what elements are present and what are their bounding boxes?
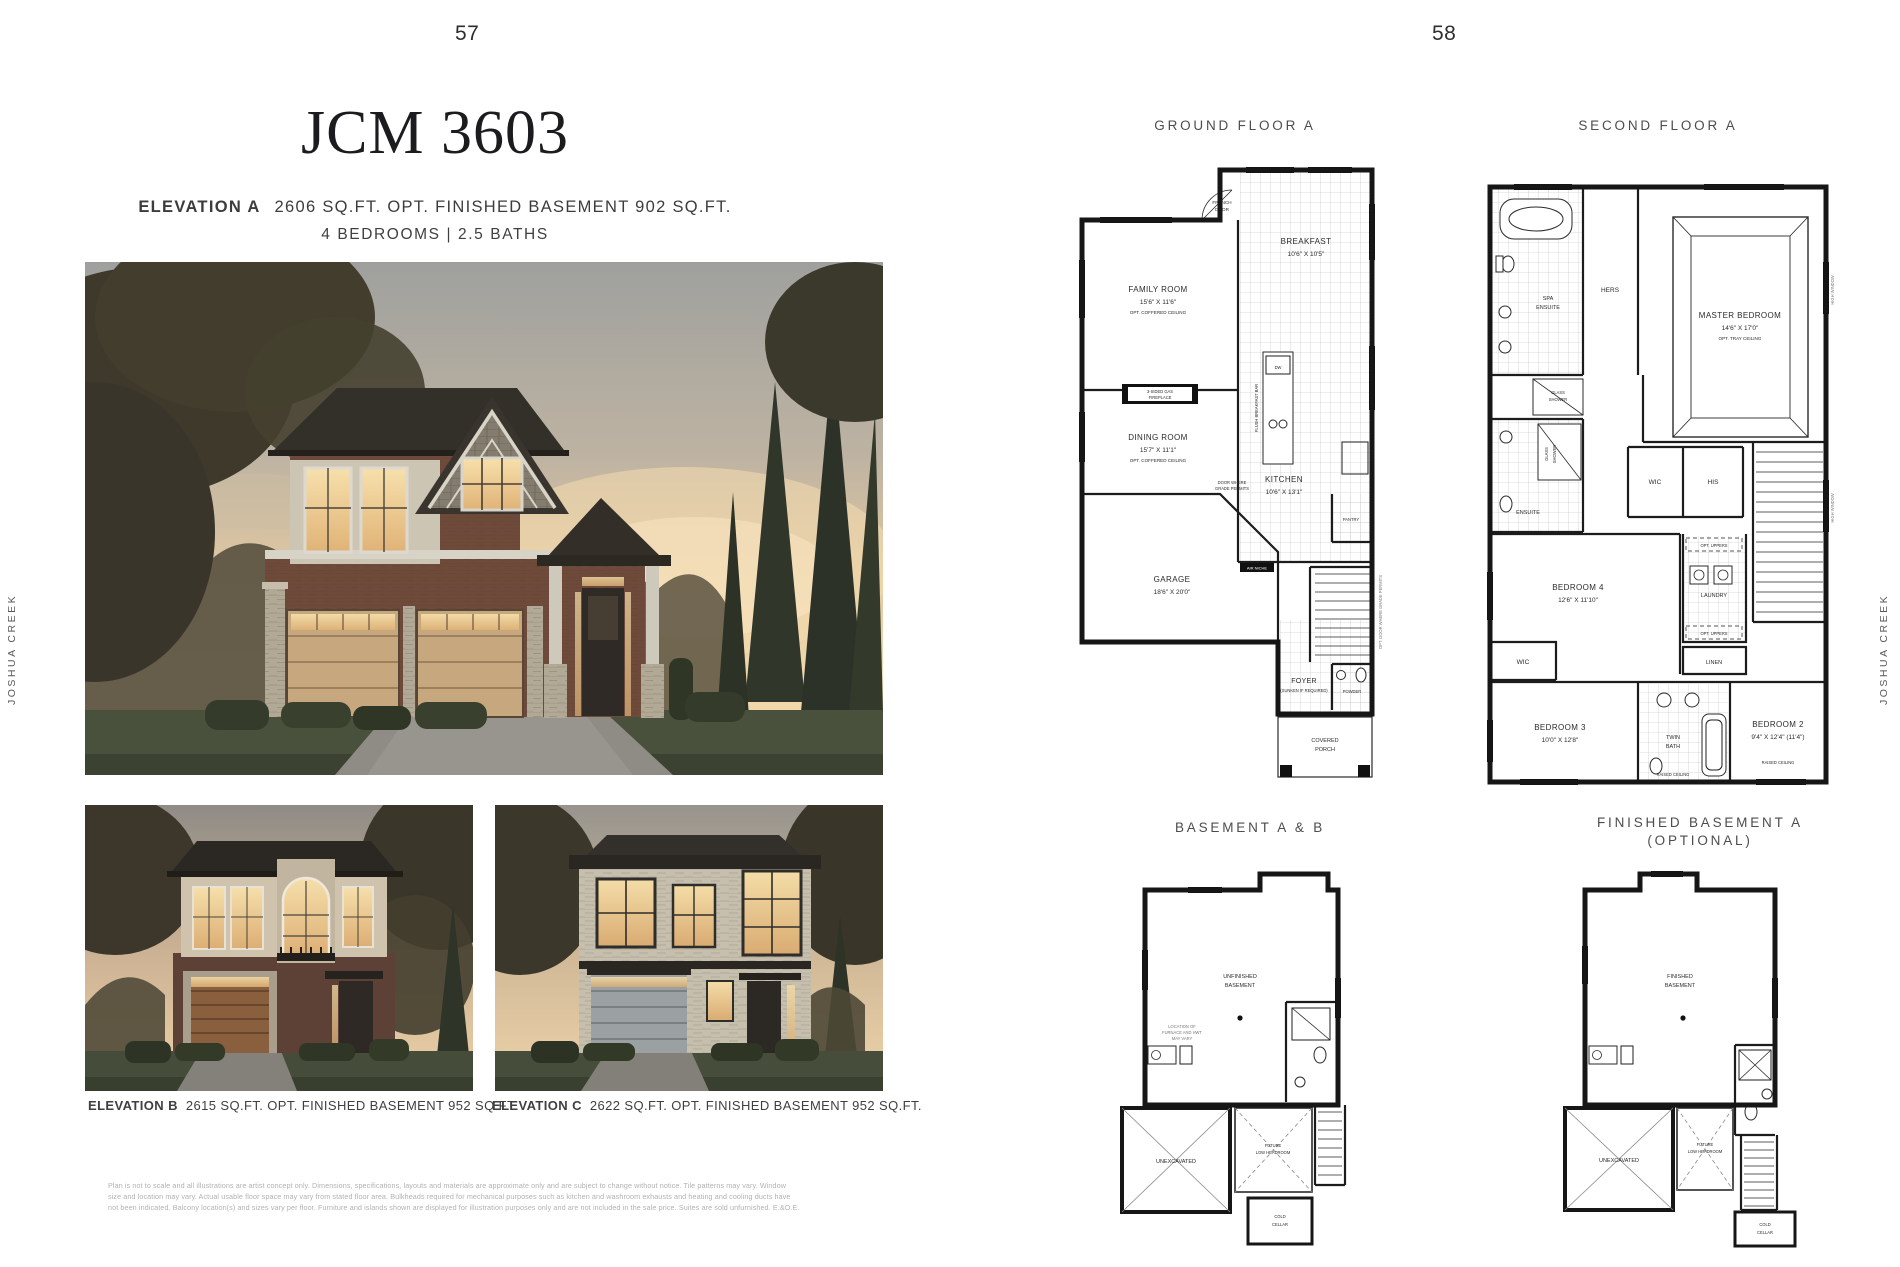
dining-room-dims: 15'7" X 11'1" <box>1140 447 1177 454</box>
cold-cellar-label-2: CELLAR <box>1272 1222 1288 1227</box>
elevation-a-subtitle: ELEVATION A2606 SQ.FT. OPT. FINISHED BAS… <box>85 198 785 217</box>
disclaimer-line-2: size and location may vary. Actual usabl… <box>108 1191 878 1202</box>
elevation-a-rendering <box>85 262 883 775</box>
bedroom2-name: BEDROOM 2 <box>1752 720 1804 729</box>
model-title: JCM 3603 <box>85 98 785 169</box>
bedroom3-name: BEDROOM 3 <box>1534 723 1586 732</box>
family-room-name: FAMILY ROOM <box>1128 285 1187 294</box>
elevation-c-caption: ELEVATION C2622 SQ.FT. OPT. FINISHED BAS… <box>492 1098 922 1113</box>
unfinished-basement-label-1: UNFINISHED <box>1223 974 1257 980</box>
floor-drain <box>1680 1015 1685 1020</box>
breakfast-dims: 10'6" X 10'5" <box>1288 251 1325 258</box>
finished-basement-plan: UNEXCAVATED FUTURE LOW HEADROOM COLD CEL… <box>1545 850 1845 1250</box>
fireplace-label-2: FIREPLACE <box>1149 395 1172 400</box>
future-low-label-1: FUTURE <box>1697 1142 1714 1147</box>
cold-cellar-label-1: COLD <box>1759 1222 1770 1227</box>
page-number-left: 57 <box>455 22 479 46</box>
elevation-c-rendering <box>495 805 883 1091</box>
ground-floor-plan: DW FLUSH BREAKFAST BAR 3-SIDED GAS FIREP… <box>1070 142 1390 797</box>
elevation-c-specs: 2622 SQ.FT. OPT. FINISHED BASEMENT 952 S… <box>590 1098 922 1113</box>
opt-uppers-label-2: OPT. UPPERS <box>1700 631 1727 636</box>
master-name: MASTER BEDROOM <box>1699 311 1782 320</box>
dishwasher-label: DW <box>1275 365 1282 370</box>
unfinished-basement-label-2: BASEMENT <box>1225 983 1256 989</box>
brochure-spread: 57 58 JOSHUA CREEK JOSHUA CREEK JCM 3603… <box>0 0 1900 1267</box>
linen-label: LINEN <box>1706 660 1722 666</box>
ground-floor-title: GROUND FLOOR A <box>1070 118 1400 133</box>
opt-uppers-label-1: OPT. UPPERS <box>1700 543 1727 548</box>
glass-shower2-label-2: SHOWER <box>1552 445 1557 463</box>
floor-drain <box>1237 1015 1242 1020</box>
covered-porch-label-1: COVERED <box>1311 738 1338 744</box>
spa-ensuite-label-1: SPA <box>1543 296 1554 302</box>
garage-dims: 18'6" X 20'0" <box>1154 589 1191 596</box>
breakfast-bar-label: FLUSH BREAKFAST BAR <box>1254 384 1259 432</box>
unexcavated-area: UNEXCAVATED <box>1122 1108 1230 1212</box>
opt-door-note: OPT. DOOR WHERE GRADE PERMITS <box>1378 575 1383 649</box>
side-label-right: JOSHUA CREEK <box>1878 555 1890 705</box>
bedroom3-dims: 10'0" X 12'8" <box>1542 737 1579 744</box>
unexcavated-label: UNEXCAVATED <box>1599 1158 1639 1164</box>
elevation-b-label: ELEVATION B <box>88 1098 178 1113</box>
future-low-headroom-area: FUTURE LOW HEADROOM <box>1677 1108 1733 1190</box>
twin-bath-label-2: BATH <box>1666 744 1680 750</box>
cold-cellar-label-1: COLD <box>1274 1214 1285 1219</box>
family-room-dims: 15'6" X 11'6" <box>1140 299 1177 306</box>
family-room-note: OPT. COFFERED CEILING <box>1130 310 1187 315</box>
house <box>569 835 821 1053</box>
finished-basement-label-1: FINISHED <box>1667 974 1693 980</box>
bedroom4-dims: 12'6" X 11'10" <box>1558 597 1599 604</box>
high-window-label-1: HIGH WINDOW <box>1830 275 1835 304</box>
garage-name: GARAGE <box>1154 575 1191 584</box>
raised-ceiling-label-2: RAISED CEILING <box>1657 772 1690 777</box>
air-niche-label: AIR NICHE <box>1247 566 1268 571</box>
high-window-label-2: HIGH WINDOW <box>1830 493 1835 522</box>
furnace-note-3: MAY VARY <box>1172 1036 1193 1041</box>
cold-cellar: COLD CELLAR <box>1735 1212 1795 1246</box>
glass-shower2-label-1: GLASS <box>1544 447 1549 461</box>
covered-porch: COVERED PORCH <box>1278 717 1372 777</box>
basement-stairs <box>1318 1112 1342 1175</box>
wic-master-label: WIC <box>1649 479 1662 486</box>
kitchen-dims: 10'6" X 13'1" <box>1266 489 1303 496</box>
master-note: OPT. TRAY CEILING <box>1719 336 1762 341</box>
master-dims: 14'6" X 17'0" <box>1722 325 1759 332</box>
elevation-a-specs: 2606 SQ.FT. OPT. FINISHED BASEMENT 902 S… <box>275 198 732 216</box>
house <box>167 841 403 1053</box>
elevation-a-label: ELEVATION A <box>138 198 260 216</box>
future-low-label-1: FUTURE <box>1265 1143 1282 1148</box>
finished-basement-title: FINISHED BASEMENT A <box>1545 815 1855 830</box>
furnace-note-1: LOCATION OF <box>1168 1024 1196 1029</box>
air-niche: AIR NICHE <box>1240 563 1274 572</box>
future-low-label-2: LOW HEADROOM <box>1688 1149 1723 1154</box>
second-floor-title: SECOND FLOOR A <box>1478 118 1838 133</box>
pantry-label: PANTRY <box>1343 517 1359 522</box>
wic2-label: WIC <box>1517 659 1530 666</box>
fireplace-label-1: 3-SIDED GAS <box>1147 389 1173 394</box>
hers-label: HERS <box>1601 287 1620 294</box>
bed-bath-line: 4 BEDROOMS | 2.5 BATHS <box>85 226 785 244</box>
garage-door-note-1: DOOR WHERE <box>1218 480 1247 485</box>
unexcavated-area: UNEXCAVATED <box>1565 1108 1673 1210</box>
future-low-headroom-area: FUTURE LOW HEADROOM <box>1235 1108 1312 1192</box>
basement-stairs <box>1744 1142 1774 1206</box>
elevation-b-caption: ELEVATION B2615 SQ.FT. OPT. FINISHED BAS… <box>88 1098 518 1113</box>
garage-door-note-2: GRADE PERMITS <box>1215 486 1249 491</box>
side-label-left: JOSHUA CREEK <box>6 555 18 705</box>
foyer-note: (SUNKEN IF REQUIRED) <box>1280 688 1328 693</box>
second-floor-plan: GLASS SHOWER GLASS SHOWER OPT. UPPERS OP… <box>1478 142 1838 797</box>
twin-bath-label-1: TWIN <box>1666 735 1680 741</box>
disclaimer: Plan is not to scale and all illustratio… <box>108 1180 878 1213</box>
ensuite-label: ENSUITE <box>1516 510 1540 516</box>
covered-porch-label-2: PORCH <box>1315 747 1335 753</box>
dining-room-note: OPT. COFFERED CEILING <box>1130 458 1187 463</box>
unexcavated-label: UNEXCAVATED <box>1156 1159 1196 1165</box>
disclaimer-line-1: Plan is not to scale and all illustratio… <box>108 1180 878 1191</box>
elevation-b-rendering <box>85 805 473 1091</box>
basement-title: BASEMENT A & B <box>1100 820 1400 835</box>
raised-ceiling-label-1: RAISED CEILING <box>1762 760 1795 765</box>
finished-basement-title-2: (OPTIONAL) <box>1545 833 1855 848</box>
page-number-right: 58 <box>1432 22 1456 46</box>
breakfast-name: BREAKFAST <box>1281 237 1332 246</box>
cold-cellar: COLD CELLAR <box>1248 1198 1312 1244</box>
glass-shower-label-1: GLASS <box>1551 390 1565 395</box>
elevation-b-specs: 2615 SQ.FT. OPT. FINISHED BASEMENT 952 S… <box>186 1098 518 1113</box>
spa-ensuite-label-2: ENSUITE <box>1536 305 1560 311</box>
disclaimer-line-3: not been indicated. Balcony location(s) … <box>108 1202 878 1213</box>
powder-label: POWDER <box>1343 689 1361 694</box>
future-low-label-2: LOW HEADROOM <box>1256 1150 1291 1155</box>
fireplace: 3-SIDED GAS FIREPLACE <box>1122 384 1198 404</box>
dining-room-name: DINING ROOM <box>1128 433 1188 442</box>
kitchen-name: KITCHEN <box>1265 475 1303 484</box>
glass-shower-label-2: SHOWER <box>1549 397 1567 402</box>
elevation-c-label: ELEVATION C <box>492 1098 582 1113</box>
bedroom2-dims: 9'4" X 12'4" (11'4") <box>1751 734 1804 741</box>
furnace-note-2: FURNACE AND HWT <box>1162 1030 1202 1035</box>
foyer-name: FOYER <box>1291 678 1317 685</box>
cold-cellar-label-2: CELLAR <box>1757 1230 1773 1235</box>
finished-basement-label-2: BASEMENT <box>1665 983 1696 989</box>
basement-plan: LOCATION OF FURNACE AND HWT MAY VARY UNE… <box>1100 850 1390 1250</box>
bedroom4-name: BEDROOM 4 <box>1552 583 1604 592</box>
his-label: HIS <box>1708 479 1720 486</box>
laundry-label: LAUNDRY <box>1701 593 1728 599</box>
